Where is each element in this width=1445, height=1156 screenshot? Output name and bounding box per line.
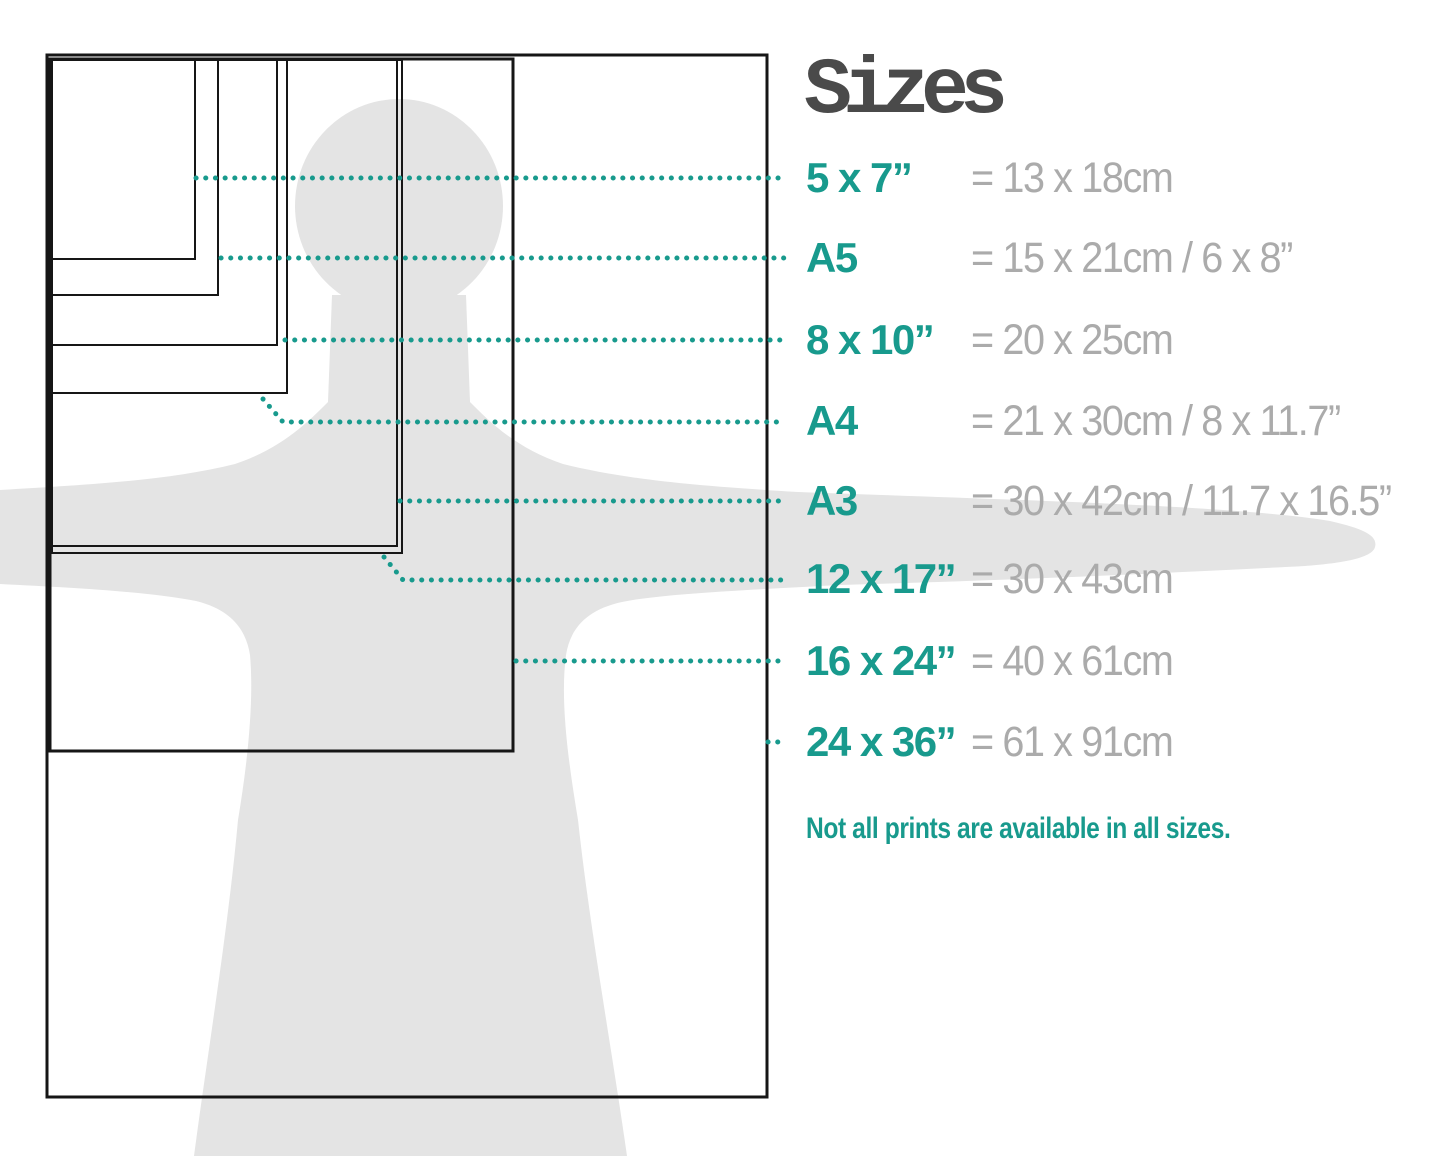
size-row-24x36: 24 x 36”= 61 x 91cm <box>806 715 1190 769</box>
size-metric: = 30 x 42cm / 11.7 x 16.5” <box>971 477 1391 526</box>
page-title: Sizes <box>804 52 999 132</box>
size-label: 5 x 7” <box>806 154 971 202</box>
size-label: 8 x 10” <box>806 316 971 364</box>
size-row-8x10: 8 x 10”= 20 x 25cm <box>806 313 1190 367</box>
size-row-5x7: 5 x 7”= 13 x 18cm <box>806 151 1190 205</box>
size-label: 12 x 17” <box>806 555 971 603</box>
size-row-a3: A3= 30 x 42cm / 11.7 x 16.5” <box>806 474 1427 528</box>
size-label: 24 x 36” <box>806 718 971 766</box>
size-label: A4 <box>806 397 971 445</box>
size-metric: = 40 x 61cm <box>971 637 1172 686</box>
size-metric: = 15 x 21cm / 6 x 8” <box>971 234 1292 283</box>
size-metric: = 61 x 91cm <box>971 718 1172 767</box>
size-metric: = 30 x 43cm <box>971 555 1172 604</box>
size-rect-a4 <box>52 60 287 393</box>
size-metric: = 13 x 18cm <box>971 154 1172 203</box>
size-metric: = 21 x 30cm / 8 x 11.7” <box>971 397 1340 446</box>
size-label: A3 <box>806 477 971 525</box>
size-label: A5 <box>806 234 971 282</box>
size-row-a5: A5= 15 x 21cm / 6 x 8” <box>806 231 1320 285</box>
person-head-shape <box>295 99 503 313</box>
size-guide-diagram: Sizes 5 x 7”= 13 x 18cmA5= 15 x 21cm / 6… <box>0 0 1445 1156</box>
size-rect-8x10 <box>52 60 277 345</box>
availability-note: Not all prints are available in all size… <box>806 812 1230 846</box>
size-row-a4: A4= 21 x 30cm / 8 x 11.7” <box>806 394 1372 448</box>
size-comparison-canvas <box>0 0 1445 1156</box>
size-label: 16 x 24” <box>806 637 971 685</box>
size-rect-5x7 <box>52 60 195 259</box>
size-metric: = 20 x 25cm <box>971 316 1172 365</box>
size-row-16x24: 16 x 24”= 40 x 61cm <box>806 634 1190 688</box>
size-row-12x17: 12 x 17”= 30 x 43cm <box>806 552 1190 606</box>
